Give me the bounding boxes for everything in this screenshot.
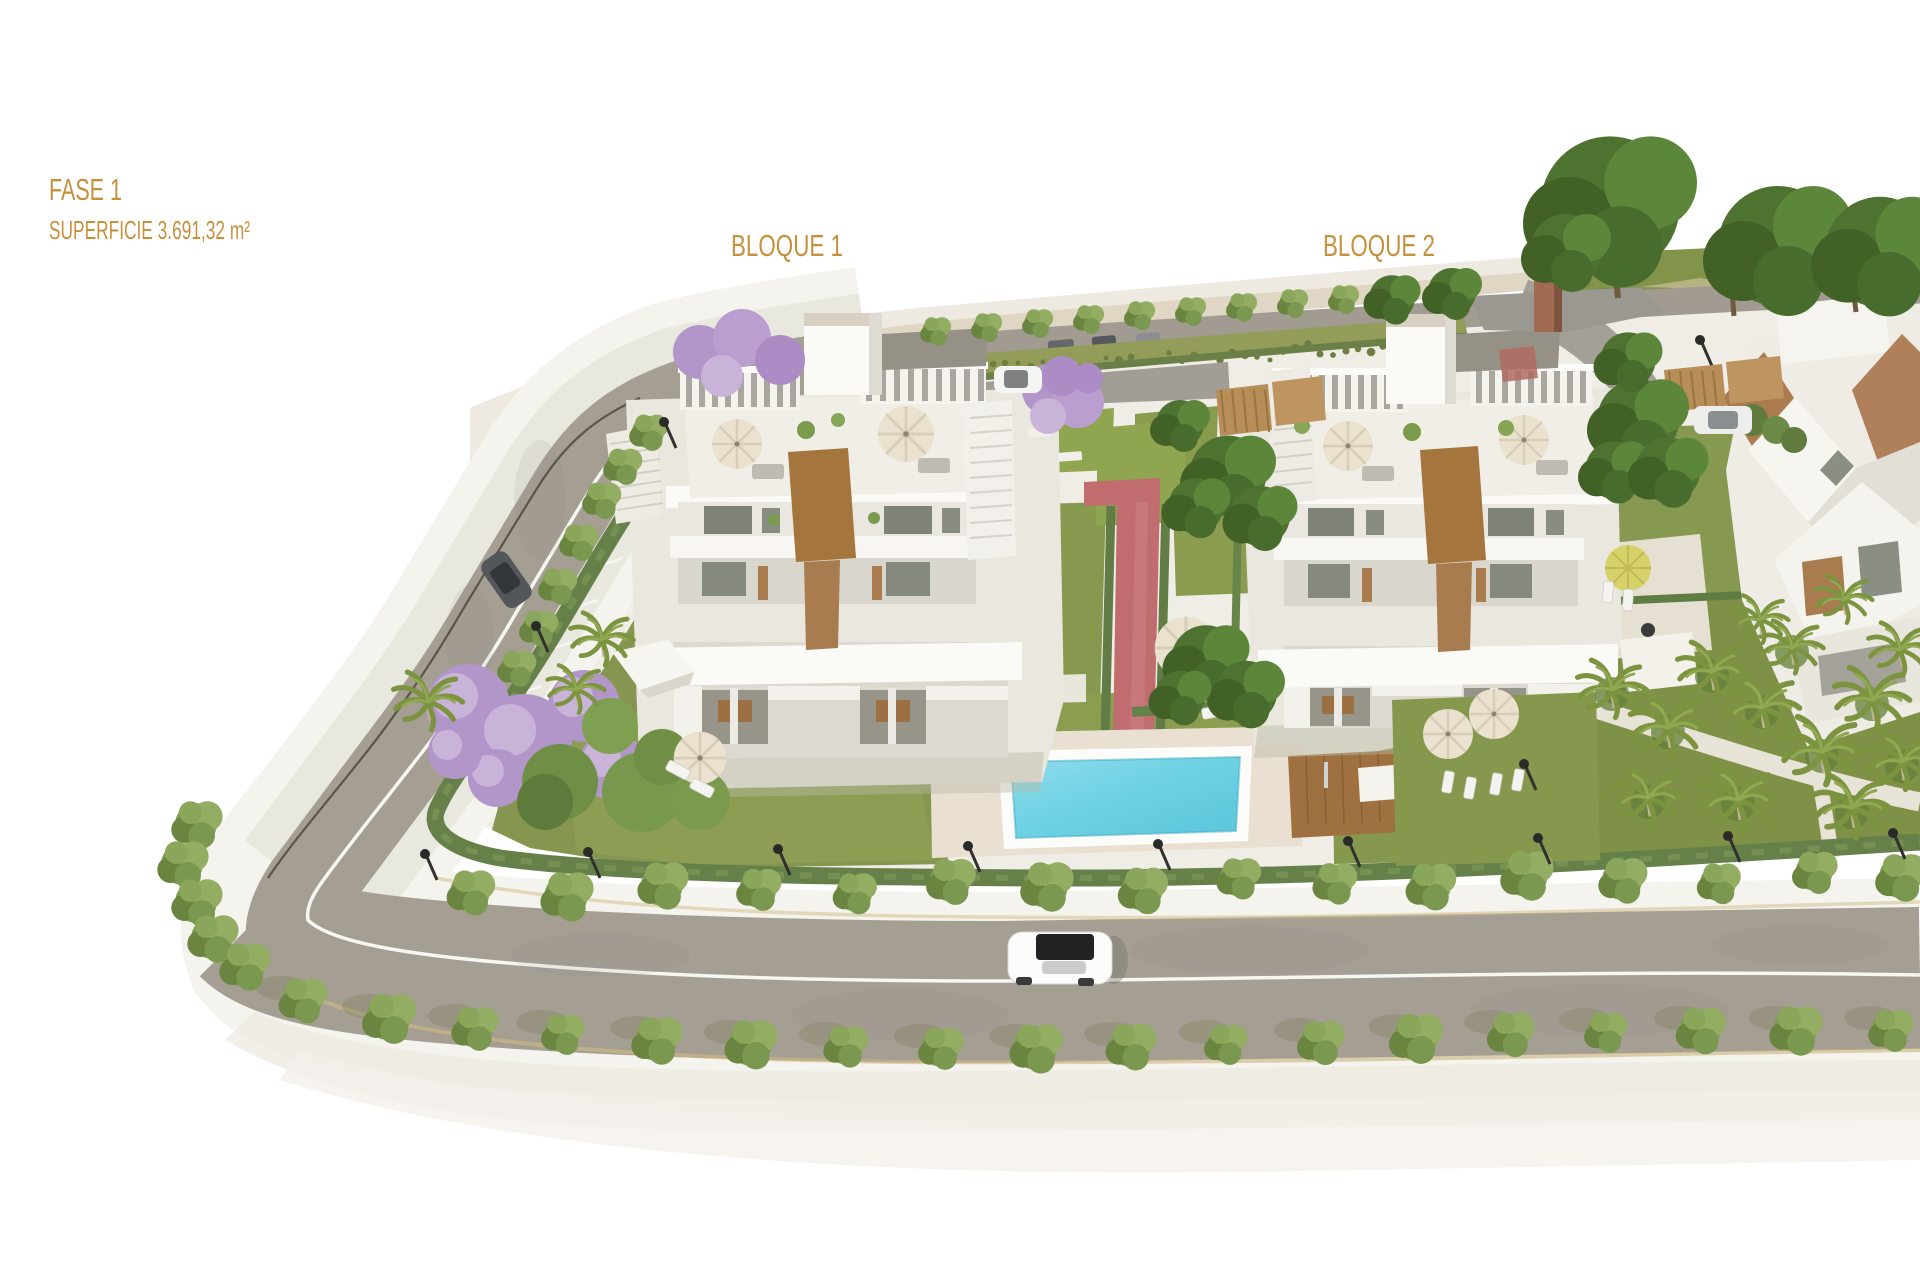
svg-text:BLOQUE 1: BLOQUE 1 [731, 228, 843, 263]
svg-text:BLOQUE 2: BLOQUE 2 [1323, 228, 1435, 263]
svg-text:SUPERFICIE 3.691,32 m²: SUPERFICIE 3.691,32 m² [49, 215, 250, 245]
svg-text:FASE 1: FASE 1 [49, 172, 122, 207]
